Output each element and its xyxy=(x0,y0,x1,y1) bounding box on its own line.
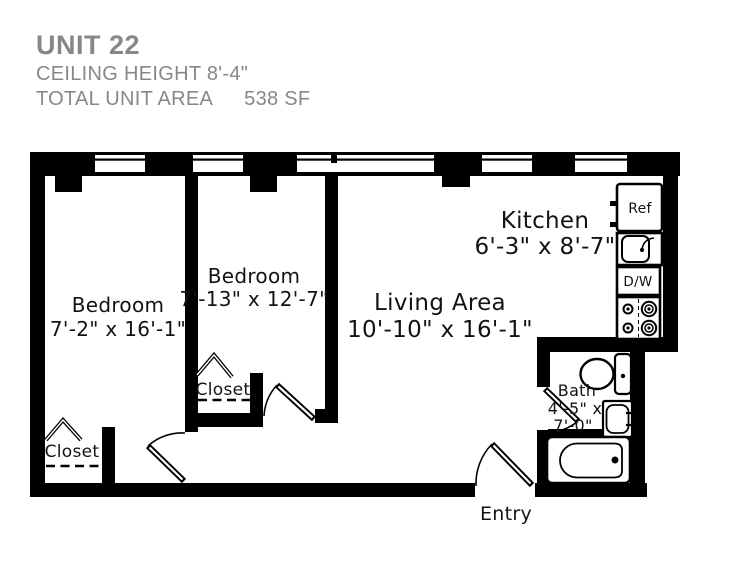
burner-dot xyxy=(647,307,650,310)
bedroom1-door-leaf-core xyxy=(150,448,183,480)
kitchen-dims: 6'-3" x 8'-7" xyxy=(474,234,615,260)
window-glass-line xyxy=(575,159,627,161)
window-glass-line xyxy=(95,159,145,161)
floorplan-drawing: Ref D/W xyxy=(0,0,741,575)
kitchen-sink-basin-icon xyxy=(622,236,649,262)
wall-left xyxy=(30,152,45,497)
living-area-name: Living Area xyxy=(374,290,506,316)
window xyxy=(482,155,532,172)
bath-name: Bath xyxy=(558,381,596,400)
wall-bath-left-upper xyxy=(537,337,550,387)
window-glass-line xyxy=(193,159,243,161)
wall-closet1-stub xyxy=(102,427,115,483)
bath-dims-line2: 7'-0" xyxy=(553,416,592,435)
bedroom2-door-swing xyxy=(264,385,277,416)
wall-right-upper xyxy=(663,152,678,352)
bedroom1-dims: 7'-2" x 16'-1" xyxy=(50,317,186,341)
pilaster-bedroom1 xyxy=(55,176,82,192)
entry-label: Entry xyxy=(480,503,532,525)
burner-dot xyxy=(626,307,629,310)
closet1-bifold-icon xyxy=(46,420,81,440)
pilaster-living xyxy=(442,176,470,187)
window xyxy=(297,155,434,172)
kitchen-faucet-base xyxy=(640,248,644,252)
bedroom2-name: Bedroom xyxy=(208,264,301,288)
entry-door-swing xyxy=(476,444,492,486)
window-glass-line xyxy=(297,159,434,161)
window-mullion-tick xyxy=(331,155,337,163)
toilet-flush-dot xyxy=(621,374,625,378)
dishwasher-label: D/W xyxy=(623,274,652,290)
refrigerator-label: Ref xyxy=(628,201,652,217)
counter-tick xyxy=(610,222,617,227)
counter-tick xyxy=(610,201,617,206)
bedroom1-door-swing xyxy=(148,433,185,446)
burner-dot xyxy=(626,326,629,329)
burner-dot xyxy=(647,326,650,329)
bedroom2-door-leaf-core xyxy=(279,387,313,418)
window xyxy=(193,155,243,172)
wall-bedroom2-bottom-piece xyxy=(315,409,338,423)
closet1-label: Closet xyxy=(45,442,100,462)
wall-bottom-left xyxy=(30,483,475,497)
wall-closet2-stub xyxy=(250,373,263,427)
kitchen-name: Kitchen xyxy=(501,208,590,234)
window xyxy=(575,155,627,172)
bathtub-drain-dot xyxy=(612,457,619,464)
closet2-label: Closet xyxy=(196,380,251,400)
bedroom1-name: Bedroom xyxy=(72,293,165,317)
pilaster-bedroom2 xyxy=(250,176,277,192)
entry-door-leaf-core xyxy=(494,446,531,484)
kitchen-appliances: Ref D/W xyxy=(610,184,662,339)
bedroom2-dims: 7'-13" x 12'-7" xyxy=(179,287,328,311)
floorplan-page: UNIT 22 CEILING HEIGHT 8'-4" TOTAL UNIT … xyxy=(0,0,741,575)
closet2-bifold-icon xyxy=(197,355,232,377)
bath-sink-basin xyxy=(607,405,629,433)
window xyxy=(95,155,145,172)
window-glass-line xyxy=(482,159,532,161)
living-area-dims: 10'-10" x 16'-1" xyxy=(347,317,533,343)
